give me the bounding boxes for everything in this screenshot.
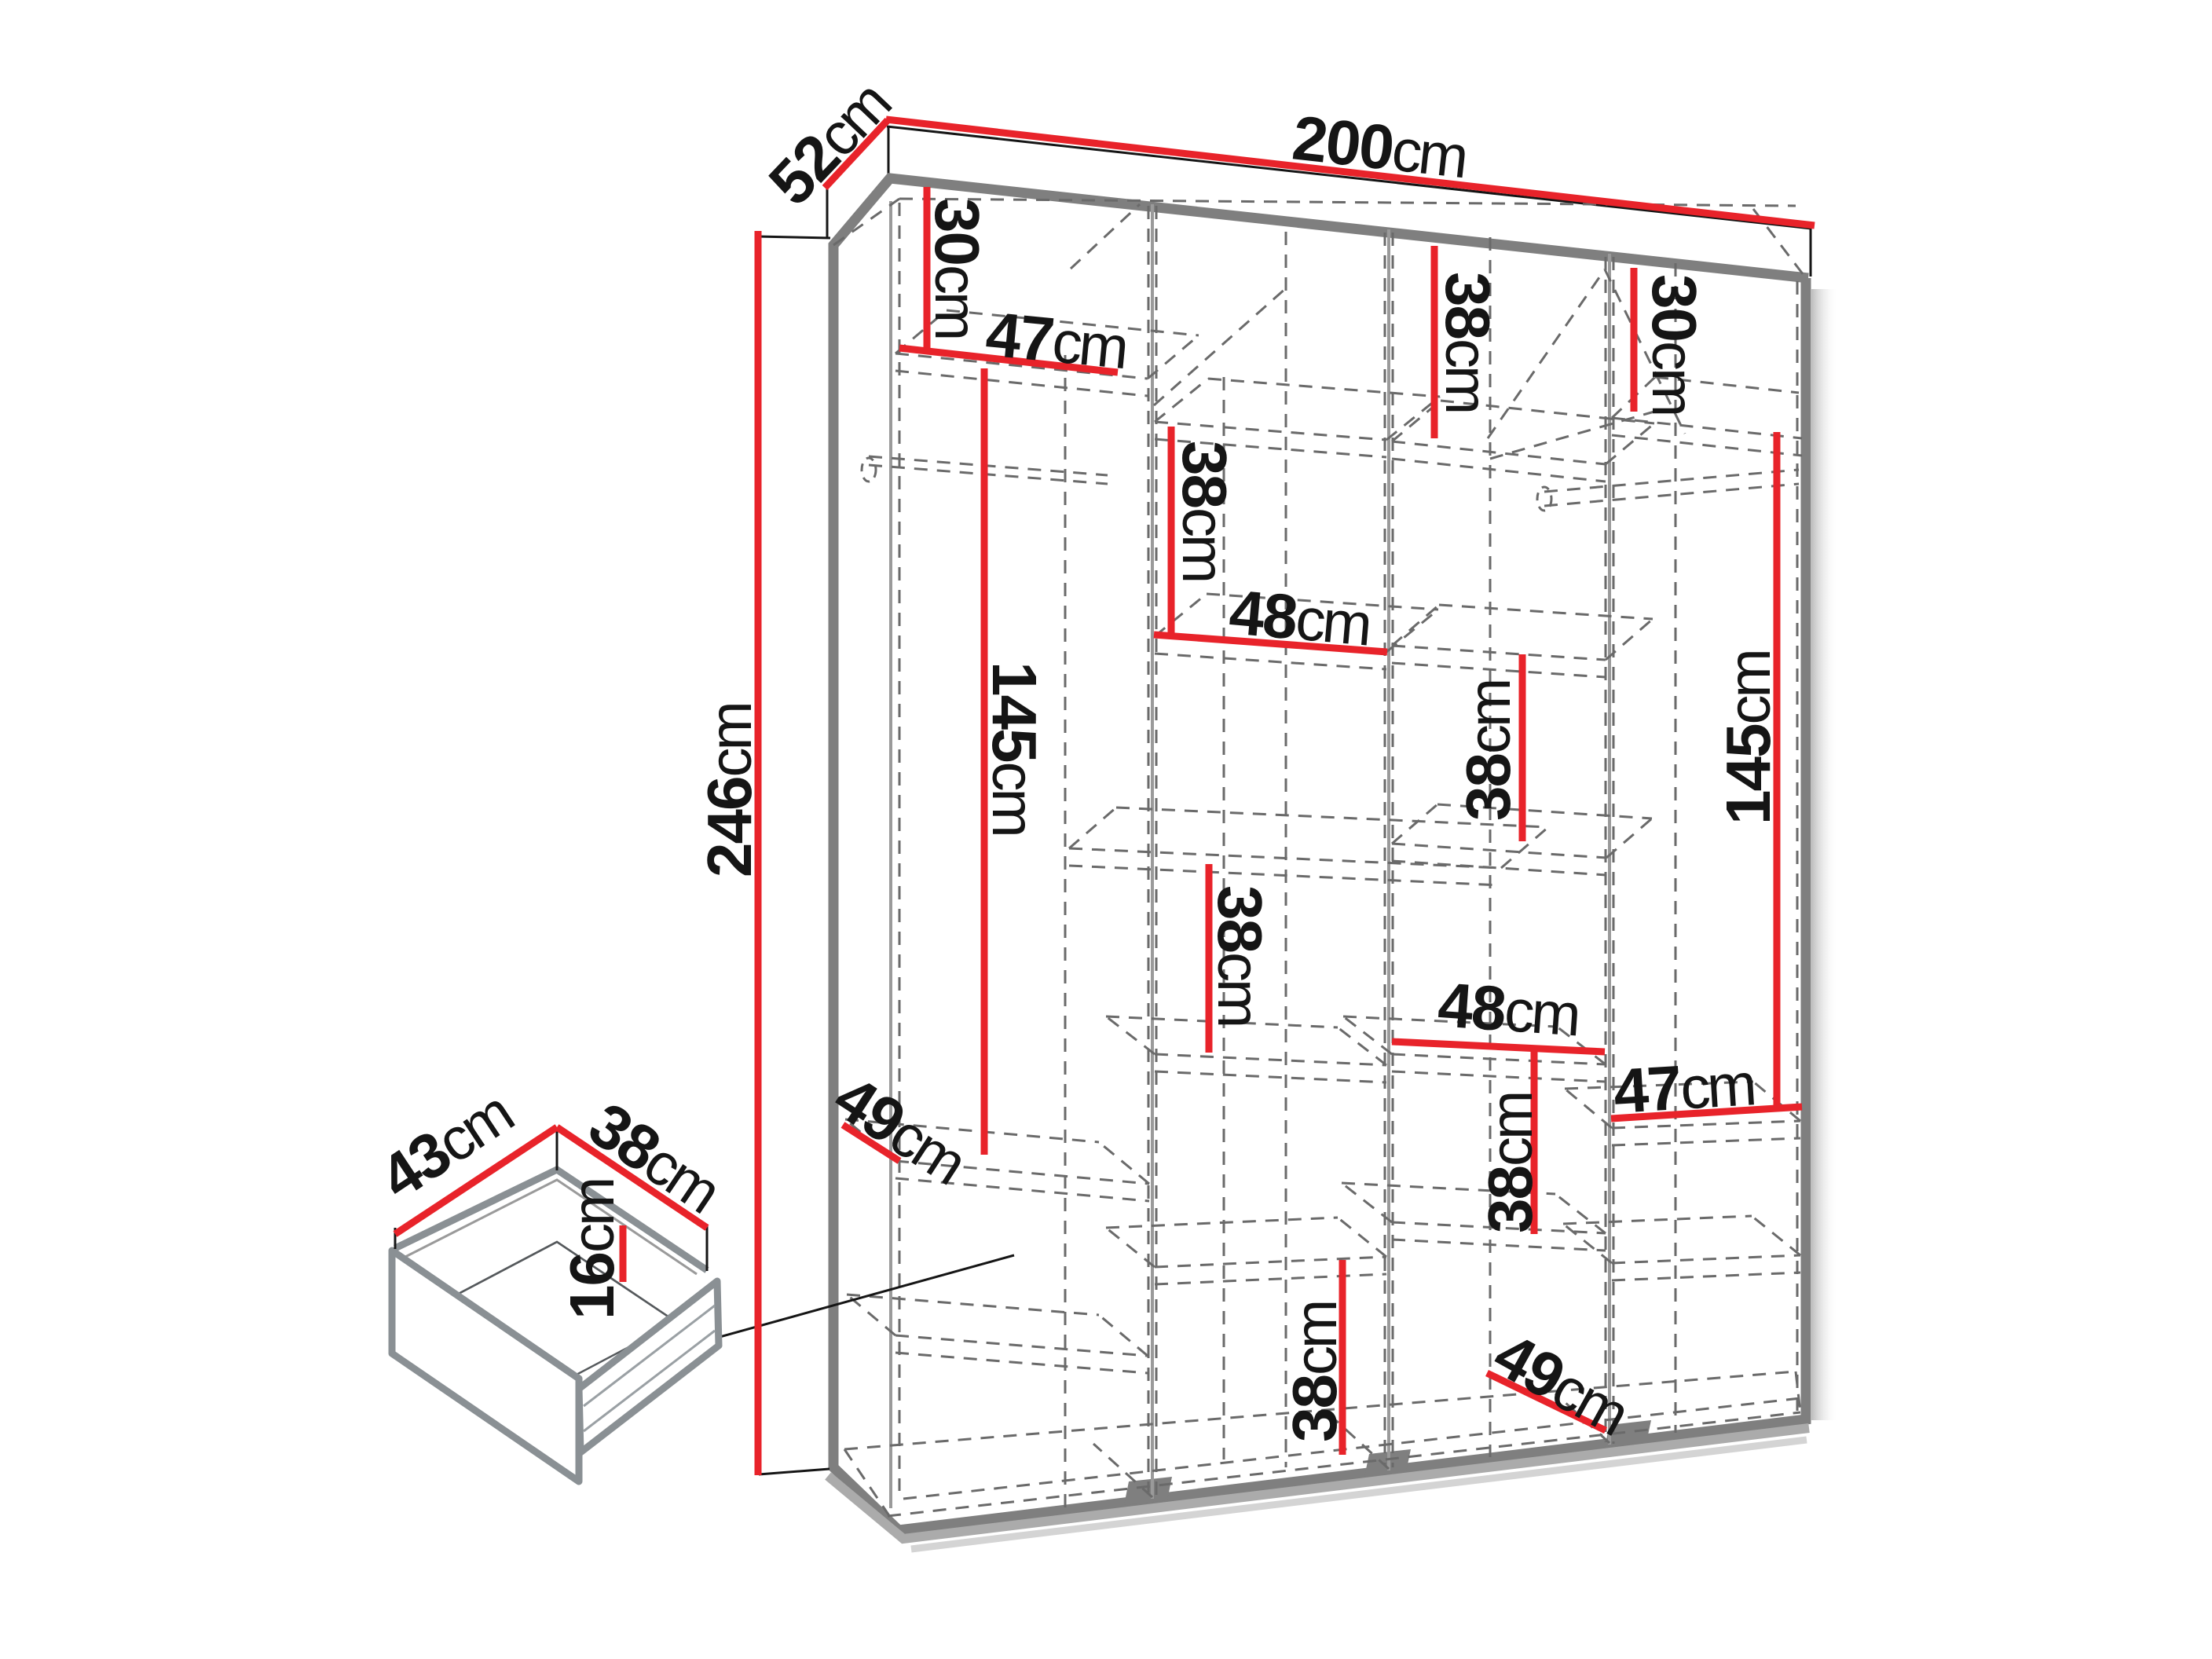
svg-text:30cm: 30cm: [1639, 274, 1709, 414]
svg-text:145cm: 145cm: [980, 661, 1049, 835]
svg-text:16cm: 16cm: [557, 1180, 627, 1320]
svg-text:145cm: 145cm: [1713, 651, 1783, 825]
svg-text:38cm: 38cm: [1205, 885, 1275, 1025]
svg-text:246cm: 246cm: [694, 704, 764, 877]
svg-text:30cm: 30cm: [922, 198, 992, 338]
svg-text:48cm: 48cm: [1436, 969, 1580, 1049]
svg-text:38cm: 38cm: [1280, 1302, 1350, 1442]
svg-text:47cm: 47cm: [1612, 1048, 1756, 1126]
svg-text:38cm: 38cm: [1475, 1093, 1545, 1233]
svg-text:38cm: 38cm: [1433, 272, 1503, 412]
svg-text:38cm: 38cm: [1453, 681, 1523, 821]
svg-text:38cm: 38cm: [1170, 441, 1240, 580]
